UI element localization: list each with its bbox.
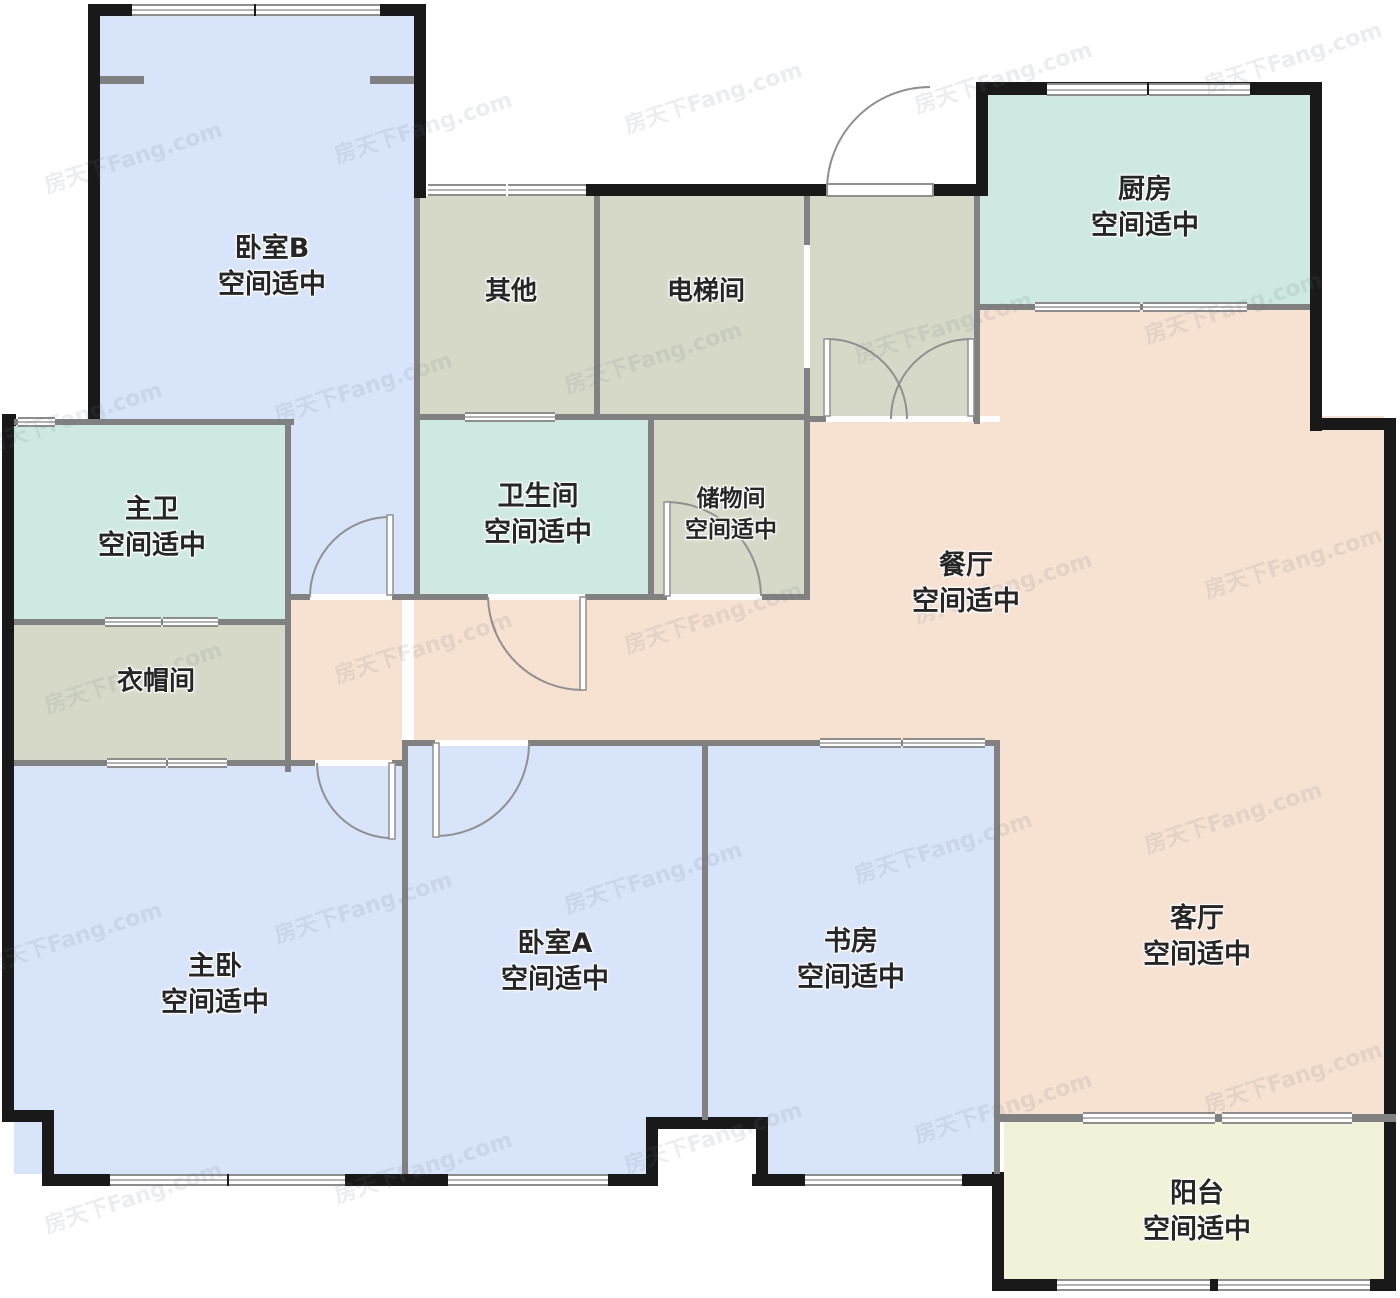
room-area-bedroom-b-lower	[291, 420, 414, 600]
room-status: 空间适中	[912, 584, 1020, 620]
window	[163, 617, 218, 627]
wall-segment	[756, 1117, 768, 1186]
room-name: 主卧	[161, 949, 269, 985]
wall-segment	[992, 1172, 1004, 1291]
door-opening	[310, 594, 392, 600]
room-label-balcony: 阳台 空间适中	[1143, 1176, 1251, 1248]
room-name: 卫生间	[484, 479, 592, 515]
window	[903, 738, 985, 748]
door-leaf	[827, 184, 933, 196]
room-name: 其他	[485, 275, 537, 310]
door-opening	[435, 740, 528, 746]
wall-segment	[285, 419, 291, 772]
door-opening	[826, 416, 973, 422]
room-name: 阳台	[1143, 1176, 1251, 1212]
door-opening	[315, 760, 392, 766]
room-status: 空间适中	[501, 962, 609, 998]
exterior-notch	[658, 1129, 756, 1186]
room-status: 空间适中	[1091, 208, 1199, 244]
wall-segment	[648, 420, 654, 600]
window	[465, 412, 555, 422]
wall-segment	[88, 4, 100, 420]
wall-segment	[414, 198, 420, 600]
wall-stub	[370, 76, 414, 84]
elevator-door-opening	[804, 245, 810, 368]
room-name: 主卫	[98, 492, 206, 528]
room-area-entry-hall	[810, 196, 974, 422]
room-name: 客厅	[1143, 901, 1251, 937]
window	[1057, 1279, 1210, 1291]
window	[1149, 83, 1250, 96]
door-opening	[488, 594, 585, 600]
wall-segment	[976, 82, 988, 196]
wall-segment	[586, 184, 827, 196]
window	[1083, 1112, 1215, 1124]
room-label-study: 书房 空间适中	[797, 924, 905, 996]
window	[1047, 83, 1147, 96]
room-area-corridor-left	[291, 600, 402, 760]
room-status: 空间适中	[98, 528, 206, 564]
window	[1222, 1112, 1352, 1124]
window	[805, 1174, 962, 1186]
room-label-other: 其他	[485, 275, 537, 310]
watermark-text: 房天下Fang.com	[620, 52, 806, 140]
door-opening	[667, 594, 762, 600]
window	[132, 4, 254, 16]
room-label-master-bath: 主卫 空间适中	[98, 492, 206, 564]
room-area-dining-living	[1000, 416, 1384, 1114]
room-status: 空间适中	[797, 960, 905, 996]
window	[448, 1174, 608, 1186]
room-name: 卧室B	[218, 231, 326, 267]
wall-segment	[974, 196, 980, 424]
window	[168, 758, 227, 768]
room-label-cloakroom: 衣帽间	[117, 665, 195, 700]
room-label-bedroom-b: 卧室B 空间适中	[218, 231, 326, 303]
room-label-kitchen: 厨房 空间适中	[1091, 172, 1199, 244]
room-status: 空间适中	[1143, 937, 1251, 973]
window	[1035, 302, 1140, 312]
door-arc	[827, 87, 930, 190]
window	[110, 1174, 227, 1186]
room-name: 厨房	[1091, 172, 1199, 208]
room-name: 书房	[797, 924, 905, 960]
window	[1143, 302, 1247, 312]
room-name: 餐厅	[912, 548, 1020, 584]
room-area-dining-under-kitchen	[980, 310, 1310, 416]
wall-segment	[804, 424, 810, 600]
room-label-elevator: 电梯间	[667, 275, 745, 310]
window	[1218, 1279, 1370, 1291]
room-status: 空间适中	[161, 985, 269, 1021]
wall-segment	[702, 740, 708, 1120]
wall-stub	[100, 76, 144, 84]
wall-segment	[402, 740, 408, 1174]
room-label-storage: 储物间 空间适中	[685, 484, 777, 546]
window	[428, 184, 506, 196]
room-label-dining: 餐厅 空间适中	[912, 548, 1020, 620]
room-name: 储物间	[685, 484, 777, 515]
window	[105, 617, 161, 627]
room-status: 空间适中	[218, 267, 326, 303]
window	[508, 184, 586, 196]
room-label-bathroom: 卫生间 空间适中	[484, 479, 592, 551]
wall-segment	[994, 740, 1000, 1174]
floor-plan: 房天下Fang.com 房天下Fang.com 房天下Fang.com 房天下F…	[0, 0, 1400, 1298]
room-name: 电梯间	[667, 275, 745, 310]
window	[107, 758, 166, 768]
room-area-corridor	[414, 600, 1000, 740]
room-status: 空间适中	[1143, 1212, 1251, 1248]
room-label-bedroom-a: 卧室A 空间适中	[501, 926, 609, 998]
wall-segment	[1384, 418, 1396, 1291]
room-label-living: 客厅 空间适中	[1143, 901, 1251, 973]
window	[18, 417, 55, 427]
room-label-master-bed: 主卧 空间适中	[161, 949, 269, 1021]
wall-segment	[1310, 82, 1322, 431]
wall-segment	[100, 419, 294, 425]
room-name: 衣帽间	[117, 665, 195, 700]
room-status: 空间适中	[685, 515, 777, 546]
wall-segment	[2, 414, 14, 1122]
window	[256, 4, 380, 16]
room-area-bedroom-b	[100, 16, 414, 420]
wall-segment	[414, 4, 426, 198]
room-status: 空间适中	[484, 515, 592, 551]
wall-segment	[594, 196, 600, 418]
window	[229, 1174, 345, 1186]
room-name: 卧室A	[501, 926, 609, 962]
window	[820, 738, 901, 748]
